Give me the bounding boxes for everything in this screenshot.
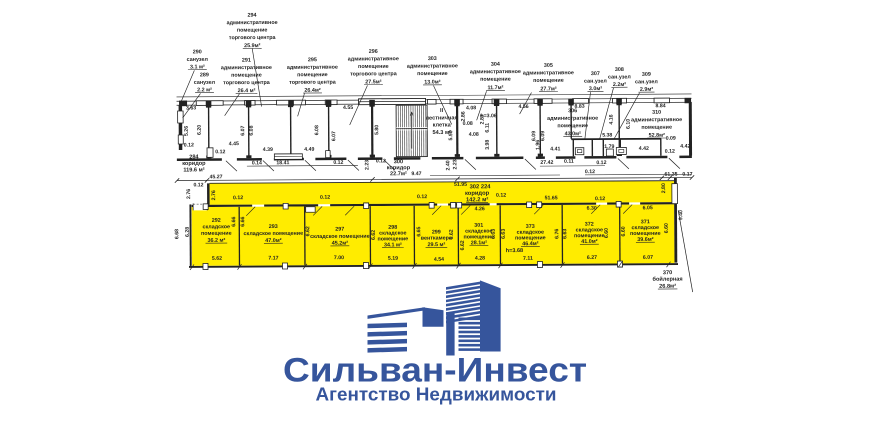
- svg-text:торгового центра: торгового центра: [350, 71, 398, 77]
- svg-text:4.41: 4.41: [550, 146, 560, 152]
- svg-text:0.17: 0.17: [682, 172, 692, 178]
- svg-text:307: 307: [591, 71, 600, 77]
- svg-text:305: 305: [544, 63, 553, 69]
- svg-text:6.62: 6.62: [305, 226, 311, 236]
- svg-text:административное: административное: [470, 69, 521, 75]
- svg-text:18.41: 18.41: [276, 160, 289, 166]
- svg-text:административное: административное: [227, 20, 278, 26]
- svg-text:0.12: 0.12: [320, 195, 330, 201]
- svg-text:7.17: 7.17: [268, 255, 278, 261]
- svg-text:4.49: 4.49: [304, 147, 314, 153]
- svg-text:0.12: 0.12: [417, 194, 427, 200]
- svg-text:6.20: 6.20: [197, 125, 203, 135]
- svg-text:6.07: 6.07: [240, 125, 246, 135]
- svg-text:0.12: 0.12: [184, 142, 194, 148]
- svg-text:сан.узел: сан.узел: [608, 74, 631, 80]
- svg-text:308: 308: [615, 67, 624, 73]
- svg-text:6.62: 6.62: [460, 240, 466, 250]
- svg-text:0.12: 0.12: [596, 160, 606, 166]
- svg-text:5.19: 5.19: [388, 256, 398, 262]
- svg-text:помещение: помещение: [201, 231, 232, 237]
- svg-text:297: 297: [335, 227, 344, 233]
- svg-text:8.84: 8.84: [656, 103, 666, 109]
- svg-text:5.62: 5.62: [212, 256, 222, 262]
- svg-text:санузел: санузел: [194, 80, 216, 86]
- svg-text:6.66: 6.66: [231, 217, 237, 227]
- svg-text:6.63: 6.63: [562, 229, 568, 239]
- svg-text:4.08: 4.08: [469, 132, 479, 138]
- svg-text:6.07: 6.07: [643, 255, 653, 261]
- svg-text:6.08: 6.08: [249, 125, 255, 135]
- svg-text:помещение: помещение: [297, 72, 328, 78]
- svg-text:административное: административное: [631, 117, 682, 123]
- svg-text:6.09: 6.09: [531, 131, 537, 141]
- svg-text:4.08: 4.08: [466, 105, 476, 111]
- svg-text:административное: административное: [547, 116, 598, 122]
- svg-text:22.7м²: 22.7м²: [390, 170, 407, 177]
- svg-text:0.14: 0.14: [252, 160, 262, 166]
- svg-text:4.28: 4.28: [475, 256, 485, 262]
- svg-text:6.63: 6.63: [491, 229, 497, 239]
- svg-text:0.12: 0.12: [215, 149, 225, 155]
- svg-text:складское помещение: складское помещение: [244, 231, 304, 237]
- svg-text:коридор: коридор: [182, 161, 206, 167]
- svg-text:6.62: 6.62: [371, 230, 377, 240]
- svg-text:6.27: 6.27: [587, 255, 597, 261]
- svg-text:4.54: 4.54: [434, 257, 444, 263]
- svg-text:0.11: 0.11: [564, 159, 574, 165]
- svg-text:310: 310: [652, 110, 661, 116]
- svg-text:0.12: 0.12: [585, 169, 595, 175]
- svg-text:0.09: 0.09: [666, 136, 676, 142]
- svg-text:помещение: помещение: [641, 125, 672, 131]
- svg-text:45.27: 45.27: [209, 174, 222, 180]
- svg-text:4.56: 4.56: [519, 104, 529, 110]
- svg-text:6.60: 6.60: [621, 226, 627, 236]
- svg-text:клетка: клетка: [433, 122, 452, 128]
- svg-text:6.05: 6.05: [643, 205, 653, 211]
- svg-text:6.76: 6.76: [554, 229, 560, 239]
- svg-text:помещение: помещение: [237, 27, 268, 33]
- svg-text:9.47: 9.47: [411, 171, 421, 177]
- svg-text:помещение: помещение: [417, 71, 448, 77]
- svg-text:6.09: 6.09: [540, 131, 546, 141]
- svg-text:6.10: 6.10: [626, 119, 632, 129]
- svg-text:лестничная: лестничная: [426, 115, 458, 121]
- svg-text:294: 294: [248, 13, 257, 19]
- svg-text:6.28: 6.28: [185, 227, 191, 237]
- svg-text:3.63: 3.63: [186, 105, 196, 111]
- svg-text:административное: административное: [523, 70, 574, 76]
- svg-text:2.76: 2.76: [186, 189, 192, 199]
- svg-text:0.12: 0.12: [496, 193, 506, 199]
- svg-text:4.42: 4.42: [680, 144, 690, 150]
- svg-text:5.90: 5.90: [448, 130, 454, 140]
- svg-text:291: 291: [242, 58, 251, 64]
- svg-text:289: 289: [200, 72, 209, 78]
- svg-text:0.12: 0.12: [233, 195, 243, 201]
- svg-text:2.80: 2.80: [661, 183, 667, 193]
- svg-text:сан.узел: сан.узел: [635, 79, 658, 85]
- svg-text:0.12: 0.12: [595, 196, 605, 202]
- svg-text:0.12: 0.12: [376, 158, 386, 164]
- svg-text:295: 295: [308, 57, 317, 63]
- svg-text:Агентство Недвижимости: Агентство Недвижимости: [316, 384, 557, 405]
- svg-text:2.76: 2.76: [211, 190, 217, 200]
- svg-text:складское: складское: [203, 224, 230, 230]
- svg-text:6.68: 6.68: [174, 229, 180, 239]
- svg-text:6.30: 6.30: [587, 206, 597, 212]
- svg-text:290: 290: [193, 49, 202, 55]
- svg-text:4.42: 4.42: [639, 146, 649, 152]
- svg-text:торгового центра: торгового центра: [289, 80, 337, 86]
- svg-text:119.6 м²: 119.6 м²: [183, 166, 204, 173]
- svg-text:61.35: 61.35: [664, 172, 677, 178]
- svg-text:2.23: 2.23: [364, 160, 370, 170]
- svg-text:2.40: 2.40: [445, 160, 451, 170]
- svg-text:7.11: 7.11: [523, 256, 533, 262]
- svg-text:5.80: 5.80: [374, 125, 380, 135]
- svg-text:6.11: 6.11: [485, 123, 491, 133]
- svg-text:292: 292: [212, 218, 221, 224]
- svg-text:6.62: 6.62: [449, 229, 455, 239]
- svg-text:5.38: 5.38: [602, 133, 612, 139]
- svg-text:2.86: 2.86: [461, 111, 467, 121]
- svg-text:санузел: санузел: [187, 57, 209, 63]
- svg-text:1.79: 1.79: [604, 144, 614, 150]
- svg-text:0.12: 0.12: [333, 160, 343, 166]
- svg-text:370: 370: [663, 270, 672, 276]
- svg-text:административное: административное: [348, 56, 399, 62]
- svg-text:6.65: 6.65: [416, 226, 422, 236]
- svg-text:административное: административное: [407, 63, 458, 69]
- svg-text:помещение: помещение: [480, 77, 511, 83]
- svg-text:сан.узел: сан.узел: [584, 79, 607, 85]
- svg-text:0.12: 0.12: [665, 149, 675, 155]
- svg-text:9.40: 9.40: [678, 210, 684, 220]
- svg-text:303: 303: [428, 56, 437, 62]
- svg-text:304: 304: [491, 62, 500, 68]
- svg-text:помещение: помещение: [557, 123, 588, 129]
- svg-text:4.16: 4.16: [609, 114, 615, 124]
- svg-text:коридор: коридор: [465, 191, 490, 197]
- svg-text:6.63: 6.63: [501, 229, 507, 239]
- svg-text:4.45: 4.45: [229, 141, 239, 147]
- svg-text:административное: административное: [221, 65, 272, 71]
- svg-text:5.26: 5.26: [184, 126, 190, 136]
- svg-text:3.98: 3.98: [485, 140, 491, 150]
- svg-text:6.60: 6.60: [664, 223, 670, 233]
- svg-text:51.65: 51.65: [545, 195, 558, 201]
- svg-text:8.83: 8.83: [575, 104, 585, 110]
- svg-text:6.60: 6.60: [604, 228, 610, 238]
- svg-text:4.39: 4.39: [263, 147, 273, 153]
- svg-text:бойлерная: бойлерная: [653, 276, 683, 283]
- svg-text:помещение: помещение: [533, 78, 564, 84]
- svg-text:51.95: 51.95: [454, 182, 467, 188]
- svg-text:6.08: 6.08: [314, 125, 320, 135]
- svg-text:309: 309: [642, 72, 651, 78]
- svg-text:1.96: 1.96: [535, 140, 541, 150]
- svg-text:II: II: [440, 108, 444, 114]
- svg-text:торгового центра: торгового центра: [223, 80, 271, 86]
- svg-text:6.66: 6.66: [240, 216, 246, 226]
- svg-text:0.12: 0.12: [193, 182, 203, 188]
- svg-text:административное: административное: [287, 65, 338, 71]
- svg-text:торгового центра: торгового центра: [229, 35, 277, 41]
- svg-text:27.42: 27.42: [540, 160, 553, 166]
- svg-text:h=3.68: h=3.68: [506, 248, 523, 254]
- svg-text:296: 296: [369, 49, 378, 55]
- svg-text:2.87: 2.87: [480, 114, 486, 124]
- svg-text:складское помещение: складское помещение: [310, 234, 370, 240]
- svg-text:2.23: 2.23: [452, 159, 458, 169]
- svg-text:4.26: 4.26: [475, 206, 485, 212]
- svg-text:7.00: 7.00: [334, 255, 344, 261]
- svg-text:284: 284: [189, 154, 199, 160]
- svg-text:помещение: помещение: [358, 64, 389, 70]
- svg-text:6.07: 6.07: [331, 131, 337, 141]
- svg-text:4.55: 4.55: [343, 105, 353, 111]
- svg-text:302 224: 302 224: [470, 184, 492, 190]
- svg-text:293: 293: [269, 224, 278, 230]
